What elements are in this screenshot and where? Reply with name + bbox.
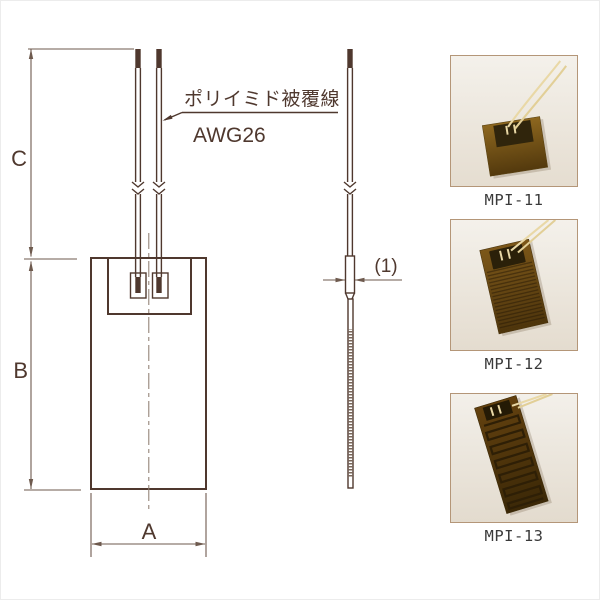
arrow-right-icon [336,278,346,282]
lead-wire-callout: ポリイミド被覆線 AWG26 [163,88,341,147]
front-view [91,49,206,513]
arrow-down-icon [29,479,33,489]
dim-label-b: B [13,358,28,383]
wire-break-icon [132,182,144,187]
side-view [344,49,356,488]
product-photo-mpi-13 [450,393,578,523]
mpi-11-photo-art [451,56,577,186]
dimension-thickness: (1) [323,256,402,282]
dim-label-a: A [142,519,157,544]
mpi-12-photo-art [451,220,577,350]
arrow-up-icon [29,261,33,271]
product-card-mpi-11: MPI-11 [450,55,578,209]
product-photo-mpi-11 [450,55,578,187]
callout-text-awg: AWG26 [193,124,266,147]
product-label-mpi-11: MPI-11 [450,191,578,209]
lead-wire-side [344,49,356,256]
dimension-a: A [91,493,206,557]
mpi-13-photo-art [451,394,577,522]
arrow-down-icon [29,247,33,257]
terminal-block-side [346,256,355,293]
element-zone-side [349,329,352,478]
arrow-left-icon [355,278,365,282]
wire-break-icon [153,189,165,194]
product-card-mpi-13: MPI-13 [450,393,578,545]
product-card-mpi-12: MPI-12 [450,219,578,373]
heater-drawing-page: C B A ポリイミド被覆線 AWG26 [0,0,600,600]
dim-label-thickness: (1) [374,256,397,277]
dimension-b: B [13,261,81,490]
wire-break-icon [344,182,356,187]
arrow-right-icon [196,542,206,546]
lead-wire-right [153,49,165,293]
dimension-c: C [11,49,134,259]
arrow-up-icon [29,49,33,59]
product-photo-mpi-12 [450,219,578,351]
product-label-mpi-12: MPI-12 [450,355,578,373]
wire-break-icon [153,182,165,187]
wire-break-icon [132,189,144,194]
wire-break-icon [344,189,356,194]
arrow-left-icon [92,542,102,546]
leader-arrow-icon [163,115,173,121]
dim-label-c: C [11,146,27,171]
callout-text-jp: ポリイミド被覆線 [184,88,340,110]
product-label-mpi-13: MPI-13 [450,527,578,545]
lead-wire-left [132,49,144,293]
electrode-hatch-area [108,258,191,314]
